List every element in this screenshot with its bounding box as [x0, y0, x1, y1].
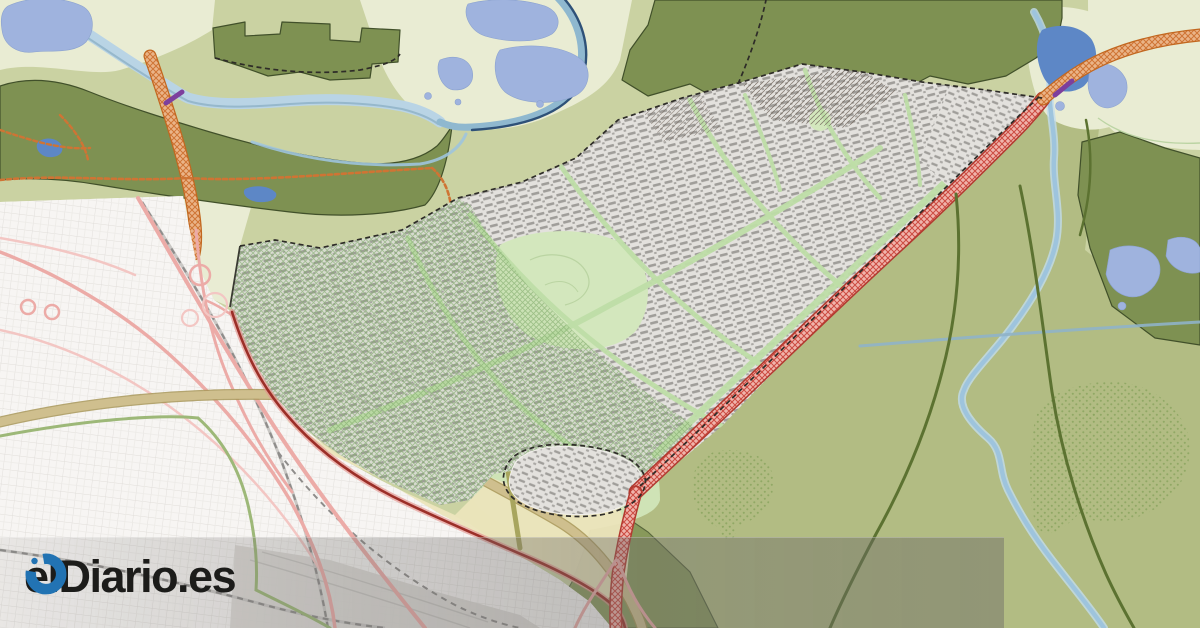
map-canvas — [0, 0, 1200, 628]
pond — [1056, 102, 1065, 111]
dotted-vegetation-patch — [1085, 405, 1099, 419]
map-screenshot: elDiario.es — [0, 0, 1200, 628]
lake-top-left — [1, 0, 92, 52]
lagoon-pond — [425, 93, 432, 100]
eldiario-logo-icon — [24, 551, 68, 597]
lagoon-pond — [455, 99, 461, 105]
eldiario-logo: elDiario.es — [24, 551, 235, 601]
lagoon-pond — [537, 101, 544, 108]
pond — [1118, 302, 1126, 310]
